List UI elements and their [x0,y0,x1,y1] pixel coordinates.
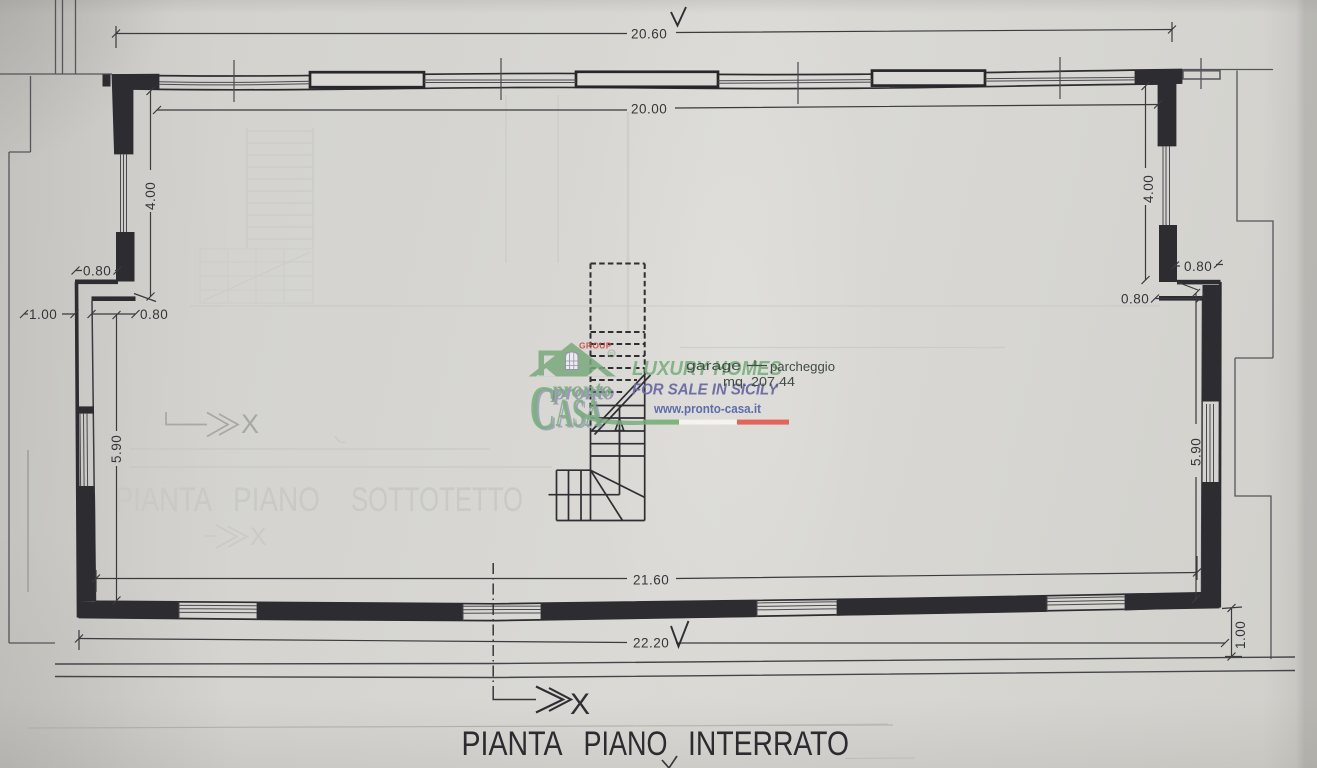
svg-text:garage: garage [686,359,741,373]
svg-text:mq. 207,44: mq. 207,44 [723,375,795,389]
svg-text:parcheggio: parcheggio [770,360,835,374]
